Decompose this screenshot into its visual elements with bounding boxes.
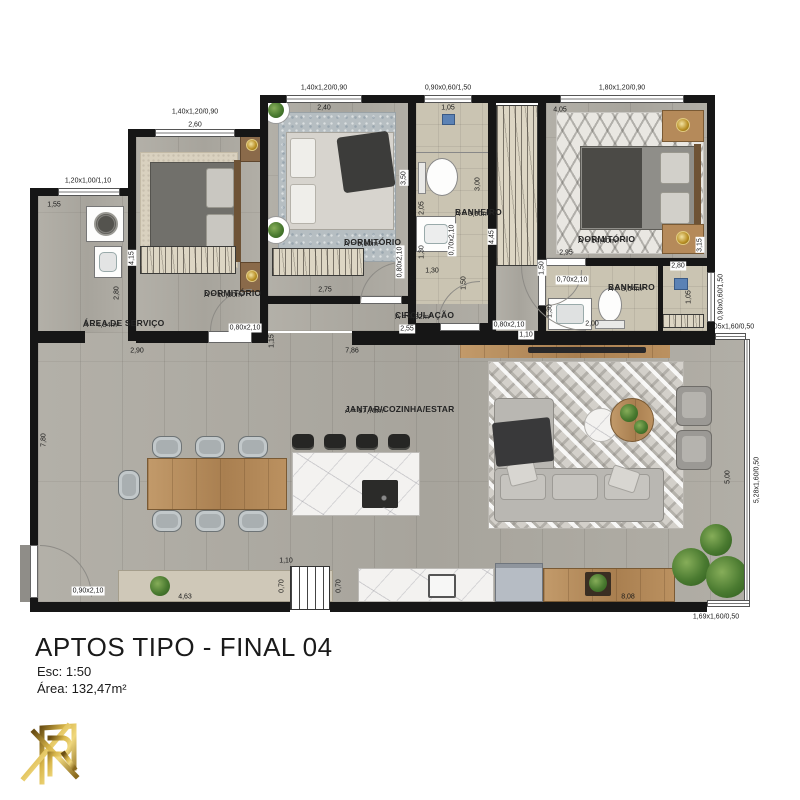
room-area: A = 4,34m² <box>83 320 119 329</box>
dining-chair <box>238 510 268 532</box>
bath1-sink <box>424 224 448 244</box>
entry-door <box>30 545 38 598</box>
dim-label: 7,86 <box>345 348 359 355</box>
dim-label: 2,60 <box>188 122 202 129</box>
wall <box>402 296 416 304</box>
window <box>560 95 684 103</box>
door-label: 0,80x2,10 <box>396 246 405 279</box>
bar-stool <box>388 434 410 450</box>
dim-label: 3,00 <box>475 177 482 191</box>
dorm1-lamp-icon <box>246 270 258 282</box>
window-label: 1,80x1,20/0,90 <box>599 85 645 92</box>
shower-glass-divider <box>416 152 488 153</box>
window-label: 1,40x1,20/0,90 <box>172 109 218 116</box>
cooktop-icon <box>362 480 398 508</box>
window-label: 1,40x1,20/0,90 <box>301 85 347 92</box>
window-label: 1,20x1,00/1,10 <box>65 178 111 185</box>
dim-label: 4,15 <box>128 250 137 266</box>
dim-label: 1,30 <box>425 268 439 275</box>
bar-stool <box>324 434 346 450</box>
bar-stool <box>356 434 378 450</box>
window <box>155 129 235 137</box>
room-area: A = 3,64m² <box>608 284 644 293</box>
wall <box>538 95 546 270</box>
dim-label: 0,90 <box>410 276 417 290</box>
door-label: 0,70x2,10 <box>448 224 457 257</box>
dim-label: 1,05 <box>686 290 693 304</box>
dim-label: 2,00 <box>585 321 599 328</box>
window <box>286 95 362 103</box>
dim-label: 1,10 <box>279 558 293 565</box>
balcony-window <box>715 333 746 340</box>
bar-stool <box>292 434 314 450</box>
dining-chair <box>195 510 225 532</box>
kitchen-sink <box>428 574 456 598</box>
dim-label: 2,40 <box>317 105 331 112</box>
dorm1-lamp-icon <box>246 139 258 151</box>
window <box>707 272 715 322</box>
wall <box>30 602 290 612</box>
dorm1-door <box>208 331 252 343</box>
dorm3-headboard <box>694 144 701 232</box>
wall <box>136 331 208 343</box>
dorm1-wardrobe <box>140 246 236 274</box>
dorm3-lamp-icon <box>676 231 690 245</box>
sofa-cushion <box>552 474 598 500</box>
dim-label: 8,08 <box>621 594 635 601</box>
window-label: 1,05x1,60/0,50 <box>708 324 754 331</box>
dorm3-pillow <box>660 152 690 184</box>
dim-label: 1,30 <box>547 304 554 318</box>
dorm2-pillow <box>290 138 316 178</box>
bath1-door <box>440 323 480 331</box>
dining-chair <box>118 470 140 500</box>
wall <box>260 95 268 341</box>
bath2-bench <box>662 314 704 328</box>
toilet-tank <box>595 320 625 329</box>
dim-label: 0,70 <box>279 579 286 593</box>
room-area: A = 4,92m² <box>395 312 431 321</box>
wall <box>30 188 38 545</box>
plant-icon <box>268 102 284 118</box>
dorm3-pillow <box>660 192 690 224</box>
dorm3-duvet <box>582 148 642 228</box>
hall-closet <box>496 105 538 266</box>
kitchen-island <box>292 452 420 516</box>
wall <box>128 129 136 341</box>
window-label: 0,90x0,60/1,50 <box>718 274 725 320</box>
balcony-glass-rail <box>707 600 750 607</box>
dim-label: 1,50 <box>538 260 547 276</box>
dim-label: 1,05 <box>441 105 455 112</box>
plant-icon <box>620 404 638 422</box>
plant-icon <box>700 524 732 556</box>
dim-label: 4,05 <box>553 107 567 114</box>
bottom-window-shaft <box>290 566 330 610</box>
door-label: 0,80x2,10 <box>229 324 262 333</box>
wall <box>416 323 440 331</box>
dim-label: 2,55 <box>399 325 415 334</box>
wall <box>472 95 560 103</box>
dorm2-throw-blanket <box>336 131 395 194</box>
dorm1-pillow <box>206 168 234 208</box>
plant-icon <box>706 556 748 598</box>
plant-icon <box>634 420 648 434</box>
wall <box>252 331 268 343</box>
dim-label: 1,10 <box>518 331 534 340</box>
sheet-scale: Esc: 1:50 <box>37 664 91 679</box>
washer-drum-icon <box>94 212 118 236</box>
sheet-title: APTOS TIPO - FINAL 04 <box>35 632 333 663</box>
tv-icon <box>528 347 646 353</box>
dining-chair <box>152 436 182 458</box>
wall <box>658 266 663 331</box>
room-area: A = 3,90m² <box>455 209 491 218</box>
plant-icon <box>268 222 284 238</box>
dorm3-door <box>546 258 586 266</box>
room-area: A = 14,40m² <box>578 236 619 245</box>
dim-label: 0,70 <box>336 579 343 593</box>
dim-label: 3,15 <box>696 237 705 253</box>
window-label: 0,90x0,60/1,50 <box>425 85 471 92</box>
toilet-bowl <box>598 288 622 322</box>
floor-plan-sheet: ÁREA DE SERVIÇO A = 4,34m² DORMITÓRIO A … <box>0 0 800 800</box>
dining-chair <box>238 436 268 458</box>
dim-label: 2,75 <box>318 287 332 294</box>
window-label: 1,69x1,60/0,50 <box>693 614 739 621</box>
dim-label: 3,50 <box>400 170 409 186</box>
dorm2-wardrobe <box>272 248 364 276</box>
dining-chair <box>152 510 182 532</box>
plant-icon <box>589 574 607 592</box>
balcony-glass-rail <box>744 339 750 602</box>
plant-icon <box>150 576 170 596</box>
window <box>58 188 120 196</box>
wall <box>586 258 707 266</box>
door-label: 0,80x2,10 <box>493 321 526 330</box>
shower-drain-icon <box>674 278 688 290</box>
toilet-bowl <box>426 158 458 196</box>
dorm3-lamp-icon <box>676 118 690 132</box>
wall <box>408 95 416 341</box>
window <box>424 95 472 103</box>
wall <box>707 95 715 272</box>
room-area: A = 10,80m² <box>204 290 245 299</box>
dining-table <box>147 458 287 510</box>
dim-label: 7,80 <box>41 433 48 447</box>
dining-chair <box>195 436 225 458</box>
window-label: 5,28x1,60/0,50 <box>754 457 761 503</box>
wall <box>268 296 360 304</box>
laundry-tank-basin <box>99 252 117 272</box>
armchair-cushion <box>682 392 706 418</box>
kitchen-counter <box>358 568 494 602</box>
dim-label: 1,15 <box>269 334 276 348</box>
sofa-throw-blanket <box>492 417 554 467</box>
stove-appliance <box>495 563 543 602</box>
toilet-tank <box>418 162 426 194</box>
dim-label: 1,30 <box>419 245 426 259</box>
dim-label: 2,80 <box>114 286 121 300</box>
dim-label: 5,00 <box>725 470 732 484</box>
dim-label: 1,50 <box>461 276 468 290</box>
company-logo-icon <box>12 716 94 794</box>
room-area: A = 67,75m² <box>345 406 386 415</box>
shower-drain-icon <box>442 114 455 125</box>
dim-label: 4,45 <box>488 229 497 245</box>
dim-label: 4,63 <box>178 594 192 601</box>
wall <box>30 331 85 343</box>
wall <box>330 602 707 612</box>
door-label: 0,90x2,10 <box>72 587 105 596</box>
dorm2-pillow <box>290 184 316 224</box>
armchair-cushion <box>682 436 706 462</box>
plant-icon <box>672 548 710 586</box>
dim-label: 1,55 <box>47 202 61 209</box>
dim-label: 2,90 <box>130 348 144 355</box>
dim-label: 2,80 <box>670 262 686 271</box>
sheet-area: Área: 132,47m² <box>37 681 127 696</box>
dim-label: 2,95 <box>559 250 573 257</box>
dim-label: 2,05 <box>419 201 426 215</box>
door-label: 0,70x2,10 <box>556 276 589 285</box>
entry-landing <box>20 545 30 602</box>
room-area: A = 9,10m² <box>344 239 380 248</box>
